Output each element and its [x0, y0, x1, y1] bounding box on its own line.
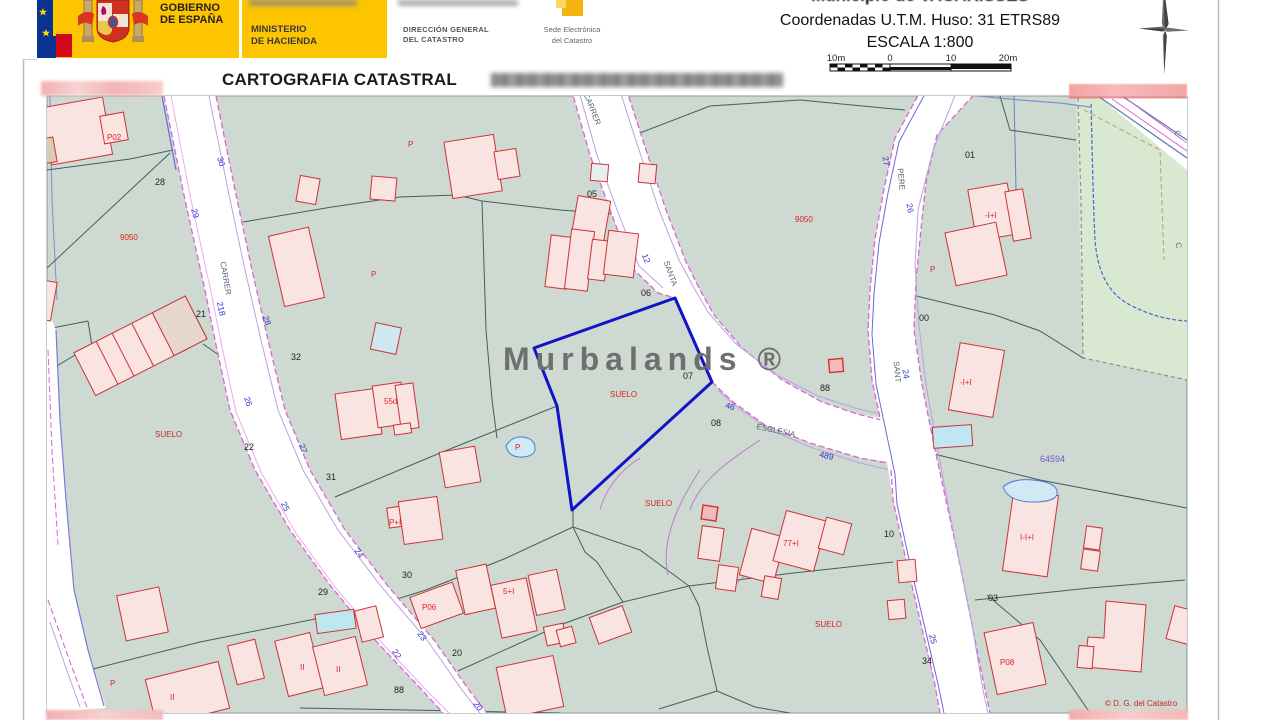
- svg-text:55d: 55d: [384, 397, 397, 406]
- svg-text:-I+I: -I+I: [985, 211, 997, 220]
- svg-text:23: 23: [415, 629, 429, 643]
- svg-text:05: 05: [587, 189, 597, 199]
- svg-text:PERE: PERE: [896, 168, 907, 190]
- svg-text:20: 20: [471, 699, 485, 713]
- svg-text:10: 10: [884, 529, 894, 539]
- svg-text:01: 01: [965, 150, 975, 160]
- svg-text:29: 29: [189, 207, 201, 219]
- svg-text:32: 32: [291, 352, 301, 362]
- svg-text:25: 25: [279, 500, 292, 513]
- svg-text:P02: P02: [107, 133, 122, 142]
- svg-text:Murbalands ®: Murbalands ®: [503, 341, 787, 377]
- svg-text:I-I+I: I-I+I: [1020, 533, 1034, 542]
- svg-text:5+I: 5+I: [503, 587, 514, 596]
- svg-text:00: 00: [919, 313, 929, 323]
- svg-text:28: 28: [155, 177, 165, 187]
- svg-text:P06: P06: [422, 603, 437, 612]
- svg-text:26: 26: [242, 395, 255, 408]
- svg-text:24: 24: [352, 546, 366, 560]
- svg-text:9050: 9050: [795, 215, 813, 224]
- svg-text:C: C: [1174, 242, 1184, 249]
- svg-text:P08: P08: [1000, 658, 1015, 667]
- svg-text:06: 06: [641, 288, 651, 298]
- svg-text:77+I: 77+I: [783, 539, 799, 548]
- svg-text:22: 22: [244, 442, 254, 452]
- svg-text:SANTA: SANTA: [662, 260, 680, 288]
- svg-text:26: 26: [904, 203, 916, 214]
- svg-text:-I+I: -I+I: [960, 378, 972, 387]
- svg-text:CARRER: CARRER: [582, 92, 603, 127]
- svg-text:12: 12: [640, 252, 653, 265]
- svg-text:22: 22: [390, 647, 404, 661]
- svg-text:46: 46: [724, 400, 736, 412]
- svg-text:CARRER: CARRER: [218, 261, 233, 296]
- svg-text:9050: 9050: [120, 233, 138, 242]
- svg-text:© D. G. del Catastro: © D. G. del Catastro: [1105, 699, 1178, 708]
- svg-text:28: 28: [261, 314, 274, 327]
- svg-text:SUELO: SUELO: [155, 430, 182, 439]
- svg-text:30: 30: [402, 570, 412, 580]
- svg-text:30: 30: [215, 156, 227, 168]
- svg-text:P: P: [515, 443, 520, 452]
- svg-text:03: 03: [988, 593, 998, 603]
- svg-text:P: P: [110, 679, 115, 688]
- svg-text:P: P: [408, 140, 413, 149]
- svg-text:31: 31: [326, 472, 336, 482]
- svg-text:II: II: [300, 663, 304, 672]
- svg-text:II: II: [170, 693, 174, 702]
- svg-text:27: 27: [880, 156, 892, 167]
- svg-text:SUELO: SUELO: [645, 499, 672, 508]
- svg-text:P: P: [371, 270, 376, 279]
- svg-text:34: 34: [922, 656, 932, 666]
- svg-text:P+I: P+I: [389, 518, 401, 527]
- svg-text:SANT: SANT: [892, 361, 903, 383]
- svg-text:64594: 64594: [1040, 454, 1065, 464]
- svg-text:SUELO: SUELO: [815, 620, 842, 629]
- svg-text:21: 21: [196, 309, 206, 319]
- svg-text:88: 88: [820, 383, 830, 393]
- svg-text:88: 88: [394, 685, 404, 695]
- svg-text:08: 08: [711, 418, 721, 428]
- svg-text:C.: C.: [1173, 128, 1185, 140]
- svg-text:25: 25: [927, 633, 939, 645]
- svg-text:29: 29: [318, 587, 328, 597]
- svg-text:II: II: [336, 665, 340, 674]
- svg-text:20: 20: [452, 648, 462, 658]
- svg-text:ESGLESIA: ESGLESIA: [756, 422, 797, 439]
- svg-text:218: 218: [215, 301, 228, 317]
- svg-text:489: 489: [819, 449, 835, 462]
- svg-text:P: P: [930, 265, 935, 274]
- svg-text:27: 27: [297, 442, 310, 455]
- svg-text:SUELO: SUELO: [610, 390, 637, 399]
